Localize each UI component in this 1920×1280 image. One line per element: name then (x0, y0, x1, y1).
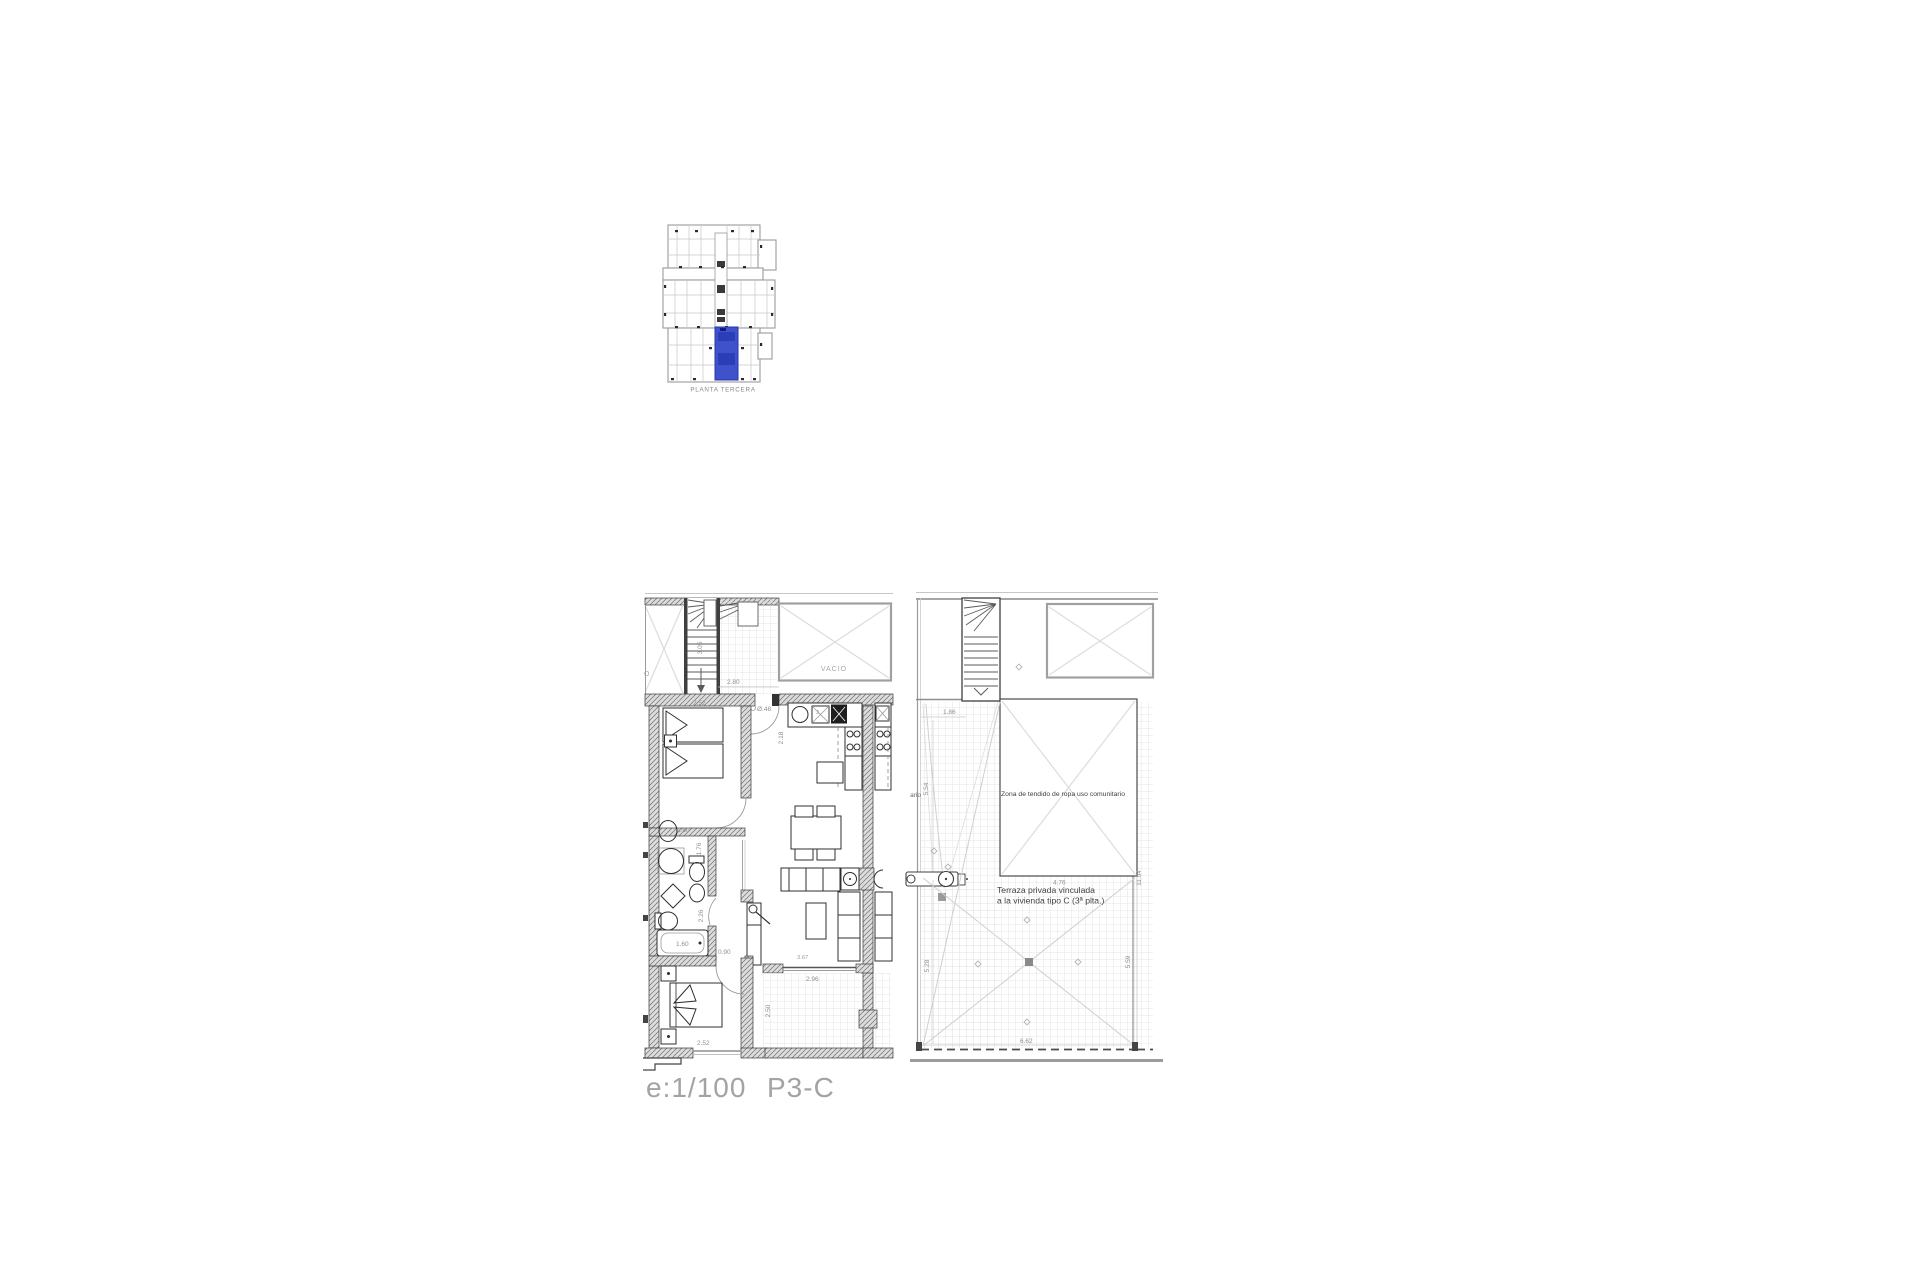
sofa-width-dim: 3.67 (797, 955, 808, 961)
terrace-label-line1: Terraza privada vinculada (997, 885, 1095, 895)
sofa-icon (789, 868, 806, 891)
dining-area (791, 806, 841, 860)
overview-caption: PLANTA TERCERA (690, 387, 755, 394)
chair-icon (795, 849, 813, 860)
bath-inner-dim: 2.26 (698, 909, 705, 922)
kitchen-island (817, 762, 843, 783)
laundry-label: Zona de tendido de ropa uso comunitario (1001, 791, 1125, 798)
floor-plan-sheet: PLANTA TERCERA O (0, 0, 1920, 1280)
bath-door-arc (709, 898, 716, 925)
stair-length-dim: 3.05 (697, 641, 704, 654)
single-bed-icon (663, 744, 723, 778)
terrace-right-dim: 5.59 (1125, 955, 1132, 968)
bathtub-dim: 1.60 (676, 941, 689, 948)
overview-highlight-unit (715, 327, 738, 380)
overview-plan: PLANTA TERCERA (663, 225, 776, 394)
vacio-void: VACIO (779, 604, 891, 681)
roof-stair-icon (962, 598, 1000, 701)
plan-code-label: P3-C (767, 1072, 835, 1103)
toilet-icon (690, 863, 705, 882)
laundry-area: Zona de tendido de ropa uso comunitario (1000, 699, 1137, 876)
chair-icon (795, 806, 813, 817)
door-width-dim: 0.90 (718, 949, 731, 956)
landing-width-dim: 2.80 (727, 679, 740, 686)
column-dim: Ø.48 (757, 706, 771, 713)
bathroom: 1.60 1.76 2.26 1.60 0.90 (655, 821, 731, 961)
plan-drawing: PLANTA TERCERA O (0, 0, 1920, 1280)
stove-icon (845, 727, 862, 756)
hall-depth-dim: 2.18 (778, 731, 785, 744)
coffee-table-icon (806, 903, 826, 939)
corner-basin-icon (661, 884, 685, 908)
bedroom1-width-dim: 2.52 (693, 700, 706, 707)
terrace-tiles (763, 973, 861, 1048)
neighbour-marks (643, 822, 648, 1023)
sink-dim: 2. (816, 710, 821, 716)
bedroom2-width-dim: 2.52 (697, 1040, 710, 1047)
sofa-icon (838, 892, 860, 915)
strip-height-dim: 5.54 (923, 782, 930, 795)
terrace-left-dim: 5.28 (924, 959, 931, 972)
outer-wall-left (649, 706, 659, 828)
roof-void (1047, 604, 1153, 678)
shower-icon (659, 849, 684, 874)
vacio-label: VACIO (821, 666, 847, 673)
terrace-width-dim: 2.96 (806, 976, 819, 983)
shower-side-dim: 1.76 (696, 842, 703, 855)
strip-label-fragment: ario (910, 792, 921, 799)
chair-icon (817, 849, 835, 860)
bedroom2: 2.52 (649, 956, 753, 1050)
terrace-depth-dim: 2.50 (765, 1004, 772, 1017)
stair-icon: 3.05 (684, 598, 720, 694)
mirror-vent-icon (874, 870, 883, 888)
void-left-label: O (644, 671, 650, 678)
scale-label: e:1/100 (646, 1072, 746, 1103)
overall-right-dim: 11.04 (1136, 870, 1143, 886)
terrace-bottom-dim: 6.62 (1020, 1038, 1033, 1045)
unit-plan: O 3.05 2.80 (643, 594, 893, 1071)
kitchen: 2. (788, 703, 862, 790)
bidet-icon (690, 884, 705, 902)
chair-icon (817, 806, 835, 817)
void-left: O (644, 605, 683, 694)
dining-table-icon (791, 816, 841, 849)
double-bed-icon (670, 983, 722, 1027)
bedroom1: 2.52 (649, 700, 751, 836)
unit-bottom-wall (643, 1048, 893, 1070)
roof-plan: Zona de tendido de ropa uso comunitario … (906, 593, 1163, 1061)
vanity-dim: 1.60 (677, 827, 690, 834)
mirror-unit-fragments (875, 703, 892, 961)
strip-width-dim: 1.86 (943, 709, 956, 716)
living-area: 3.67 (747, 868, 883, 965)
terrace-label-line2: a la vivienda tipo C (3ª plta.) (997, 896, 1104, 906)
